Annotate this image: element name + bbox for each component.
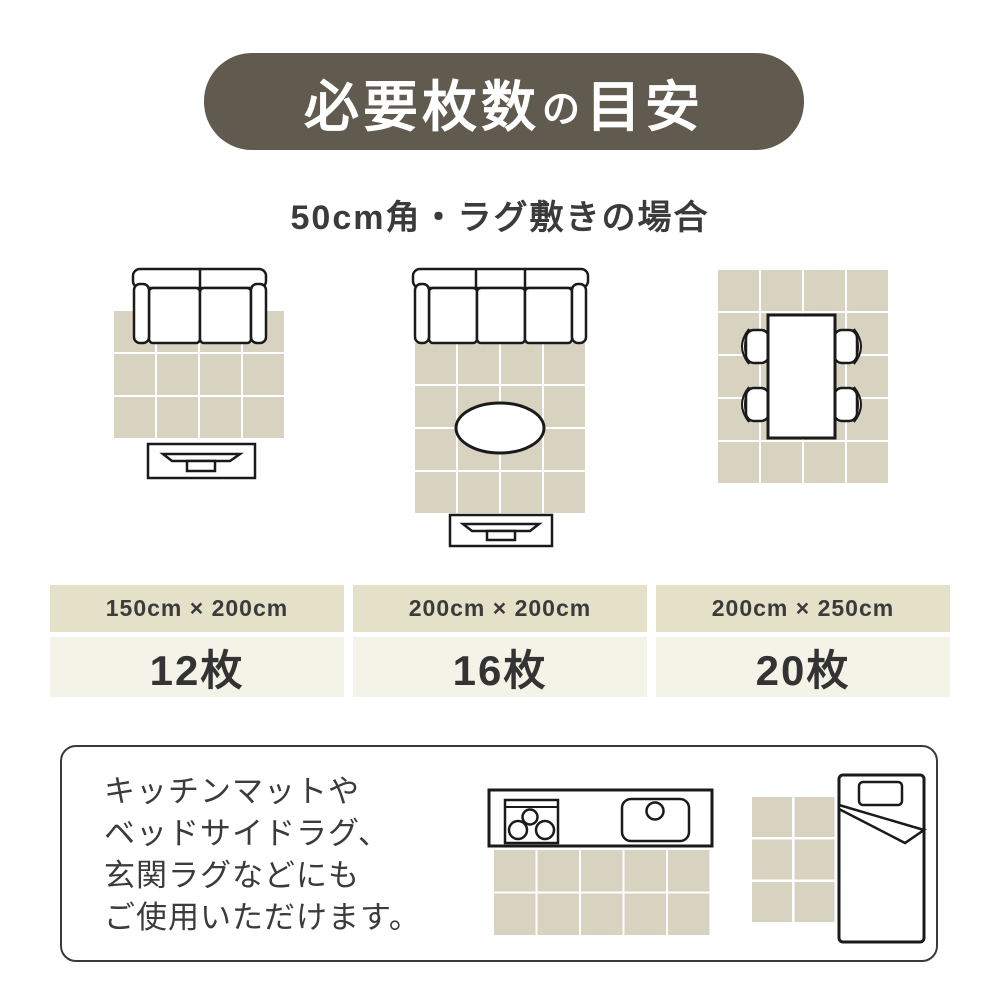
bedside-rug-illustration (750, 770, 930, 950)
size-header: 200cm × 250cm (656, 585, 950, 632)
title-text-particle: の (542, 78, 584, 133)
title-banner: 必要枚数の目安 (204, 53, 804, 150)
sofa-3seat-icon (413, 269, 588, 343)
diagram-dining-20-tiles (710, 265, 890, 485)
bedside-rug-grid (752, 797, 835, 922)
title-text-main1: 必要枚数 (304, 62, 540, 142)
kitchen-counter-icon (489, 790, 712, 846)
title-text-main2: 目安 (586, 62, 704, 142)
size-header: 150cm × 200cm (50, 585, 344, 632)
pillow-icon (859, 782, 902, 805)
usage-note-text: キッチンマットや ベッドサイドラグ、 玄関ラグなどにも ご使用いただけます。 (104, 771, 421, 939)
tv-board-icon (450, 515, 552, 546)
kitchen-mat-grid (494, 850, 710, 935)
table-column: 150cm × 200cm 12枚 (50, 585, 344, 697)
dining-chair-icon (742, 387, 769, 422)
note-line: ご使用いただけます。 (104, 897, 421, 939)
subtitle: 50cm角・ラグ敷きの場合 (0, 190, 1000, 239)
piece-count: 12枚 (50, 637, 344, 697)
note-line: ベッドサイドラグ、 (104, 813, 421, 855)
diagram-living-16-tiles (403, 265, 593, 555)
note-line: 玄関ラグなどにも (104, 855, 421, 897)
sofa-2seat-icon (133, 269, 266, 343)
rug-tiles-infographic: 必要枚数の目安 50cm角・ラグ敷きの場合 (0, 0, 1000, 1000)
dining-chair-icon (834, 387, 861, 422)
bed-icon (839, 775, 924, 942)
piece-count: 20枚 (656, 637, 950, 697)
sink-icon (622, 799, 689, 841)
size-header: 200cm × 200cm (353, 585, 647, 632)
piece-count: 16枚 (353, 637, 647, 697)
dining-table-icon (768, 315, 835, 438)
tv-board-icon (148, 444, 255, 478)
dining-chair-icon (834, 329, 861, 364)
kitchen-mat-illustration (487, 788, 715, 938)
table-column: 200cm × 250cm 20枚 (656, 585, 950, 697)
dining-chair-icon (742, 329, 769, 364)
oval-table-icon (456, 403, 544, 453)
usage-note-box: キッチンマットや ベッドサイドラグ、 玄関ラグなどにも ご使用いただけます。 (60, 745, 938, 962)
note-line: キッチンマットや (104, 771, 421, 813)
size-count-table: 150cm × 200cm 12枚 200cm × 200cm 16枚 200c… (50, 585, 950, 697)
stove-icon (505, 800, 558, 843)
table-column: 200cm × 200cm 16枚 (353, 585, 647, 697)
diagram-living-12-tiles (110, 265, 290, 480)
